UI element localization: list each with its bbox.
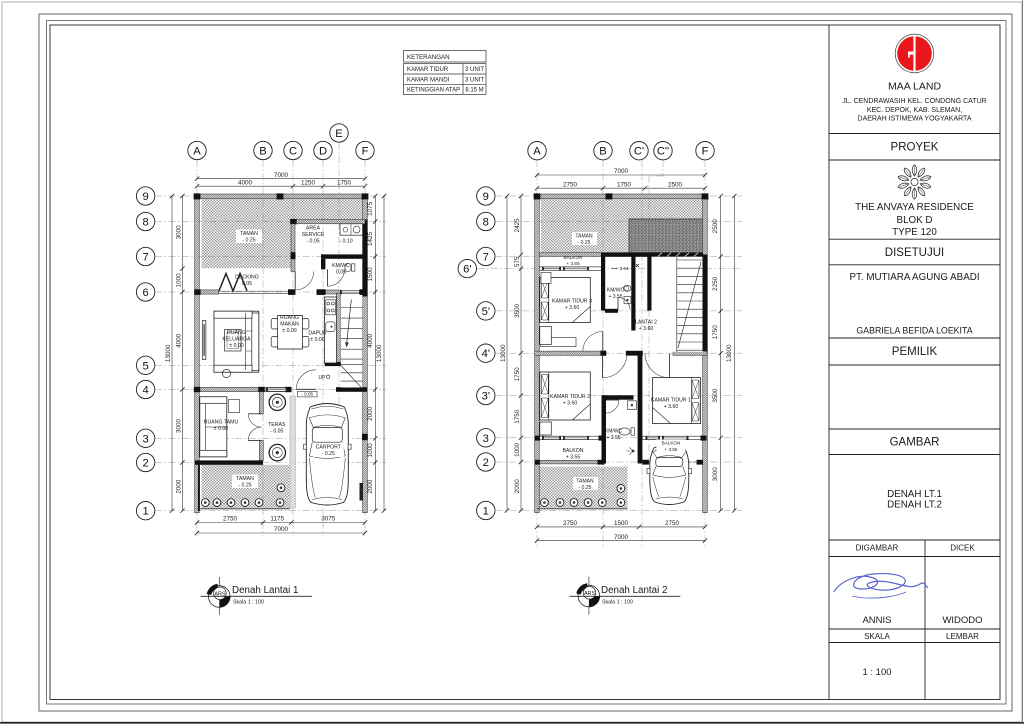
svg-text:2250: 2250 [712, 276, 719, 291]
svg-text:KM/WC: KM/WC [605, 429, 623, 435]
svg-text:LANTAI 2: LANTAI 2 [635, 320, 657, 326]
svg-text:0.05: 0.05 [242, 281, 252, 287]
svg-text:KEC. DEPOK, KAB. SLEMAN,: KEC. DEPOK, KAB. SLEMAN, [867, 107, 962, 114]
svg-text:CARPORT: CARPORT [316, 445, 342, 451]
svg-text:B: B [599, 146, 606, 158]
svg-text:+ 3.55: + 3.55 [566, 261, 580, 266]
svg-text:1075: 1075 [367, 201, 374, 216]
svg-text:DIGAMBAR: DIGAMBAR [856, 544, 899, 553]
svg-text:ANNIS: ANNIS [862, 615, 891, 626]
svg-text:3075: 3075 [321, 516, 336, 523]
svg-text:KAMAR TIDUR: KAMAR TIDUR [407, 67, 449, 73]
svg-text:+ 3.55: + 3.55 [606, 435, 620, 441]
svg-text:+ 3.60: + 3.60 [639, 326, 654, 332]
svg-text:2000: 2000 [514, 479, 521, 494]
svg-text:- 0.25: - 0.25 [579, 485, 592, 491]
svg-text:- 0.05: - 0.05 [301, 392, 313, 397]
svg-text:5: 5 [142, 360, 148, 372]
svg-text:MAA LAND: MAA LAND [888, 81, 942, 93]
svg-text:2750: 2750 [563, 181, 578, 188]
svg-text:5': 5' [482, 306, 490, 318]
svg-text:KETINGGIAN ATAP: KETINGGIAN ATAP [407, 88, 460, 94]
svg-text:C'': C'' [657, 146, 669, 158]
svg-text:THE ANVAYA RESIDENCE: THE ANVAYA RESIDENCE [855, 202, 974, 213]
svg-text:7000: 7000 [274, 526, 289, 533]
svg-text:Denah Lantai 1: Denah Lantai 1 [232, 585, 298, 596]
svg-text:F: F [702, 146, 709, 158]
svg-text:DENAH LT.1: DENAH LT.1 [887, 489, 942, 500]
svg-text:KM/WC: KM/WC [607, 288, 625, 294]
svg-text:SERVICE: SERVICE [302, 232, 325, 238]
svg-text:PEMILIK: PEMILIK [892, 346, 938, 358]
svg-text:13000: 13000 [165, 344, 172, 362]
svg-text:1500: 1500 [367, 267, 374, 282]
svg-text:RUANG TAMU: RUANG TAMU [204, 420, 239, 426]
svg-text:3: 3 [142, 433, 148, 445]
svg-text:2750: 2750 [223, 516, 238, 523]
svg-text:8: 8 [483, 217, 489, 229]
svg-text:3500: 3500 [712, 388, 719, 403]
svg-text:GABRIELA BEFIDA LOEKITA: GABRIELA BEFIDA LOEKITA [856, 326, 972, 336]
svg-text:575: 575 [514, 256, 521, 267]
svg-text:- 0.05: - 0.05 [270, 428, 283, 434]
svg-text:1 : 100: 1 : 100 [862, 667, 891, 678]
svg-text:1750: 1750 [337, 179, 352, 186]
svg-text:SKALA: SKALA [864, 632, 890, 641]
svg-text:AREA: AREA [306, 226, 321, 232]
svg-text:9: 9 [483, 191, 489, 203]
svg-text:C': C' [634, 146, 644, 158]
svg-text:13000: 13000 [500, 344, 507, 362]
svg-text:+ 3.60: + 3.60 [565, 305, 580, 311]
svg-text:1: 1 [142, 506, 148, 518]
svg-text:TAMAN: TAMAN [575, 234, 593, 240]
svg-text:PT. MUTIARA AGUNG ABADI: PT. MUTIARA AGUNG ABADI [849, 272, 979, 283]
svg-text:+ 3.60: + 3.60 [563, 400, 578, 406]
svg-text:+ 3.64: + 3.64 [615, 266, 629, 271]
svg-text:± 0.00: ± 0.00 [310, 337, 324, 343]
svg-text:KAMAR TIDUR 2: KAMAR TIDUR 2 [550, 394, 590, 400]
svg-text:A: A [533, 146, 541, 158]
svg-text:DECKING: DECKING [235, 275, 259, 281]
svg-text:± 0.00: ± 0.00 [229, 343, 243, 349]
svg-text:DICEK: DICEK [950, 544, 975, 553]
svg-text:3 UNIT: 3 UNIT [465, 77, 484, 83]
svg-text:± 0.00: ± 0.00 [214, 426, 228, 432]
svg-text:+ 3.55: + 3.55 [608, 294, 622, 300]
svg-text:7000: 7000 [614, 534, 629, 541]
svg-text:KM/WC: KM/WC [332, 263, 350, 269]
svg-text:KETERANGAN: KETERANGAN [407, 54, 450, 61]
svg-text:4: 4 [142, 385, 148, 397]
svg-text:1750: 1750 [617, 181, 632, 188]
svg-text:3: 3 [483, 433, 489, 445]
svg-text:7: 7 [142, 252, 148, 264]
svg-text:KAMAR MANDI: KAMAR MANDI [407, 77, 450, 83]
svg-text:4': 4' [482, 348, 490, 360]
svg-text:2750: 2750 [665, 520, 680, 527]
svg-text:0.05: 0.05 [336, 269, 346, 275]
svg-text:RUANG: RUANG [227, 330, 246, 336]
svg-text:UP: UP [319, 375, 327, 381]
svg-text:2500: 2500 [668, 181, 683, 188]
svg-text:TAMAN: TAMAN [576, 479, 594, 485]
svg-text:2500: 2500 [712, 219, 719, 234]
svg-text:- 0.10: - 0.10 [339, 239, 352, 245]
svg-text:2: 2 [142, 458, 148, 470]
svg-text:2: 2 [483, 457, 489, 469]
svg-text:- 0.25: - 0.25 [238, 482, 251, 488]
svg-text:PROYEK: PROYEK [891, 142, 939, 154]
svg-text:7000: 7000 [614, 168, 629, 175]
svg-text:3000: 3000 [176, 225, 183, 240]
svg-text:4000: 4000 [367, 333, 374, 348]
svg-text:TYPE 120: TYPE 120 [892, 227, 937, 238]
svg-text:GAMBAR: GAMBAR [890, 437, 940, 449]
svg-text:6': 6' [463, 264, 471, 276]
svg-text:Skala 1 : 100: Skala 1 : 100 [602, 600, 633, 606]
svg-text:8.15 M: 8.15 M [465, 88, 483, 94]
svg-text:JL. CENDRAWASIH KEL. CONDONG C: JL. CENDRAWASIH KEL. CONDONG CATUR [842, 98, 986, 105]
svg-text:TAMAN: TAMAN [240, 231, 258, 237]
svg-text:- 0.05: - 0.05 [306, 238, 319, 244]
svg-text:MAKAN: MAKAN [280, 321, 299, 327]
svg-text:DAERAH ISTIMEWA YOGYAKARTA: DAERAH ISTIMEWA YOGYAKARTA [858, 115, 972, 122]
svg-text:2000: 2000 [367, 479, 374, 494]
svg-text:13000: 13000 [726, 344, 733, 362]
svg-text:BLOK D: BLOK D [897, 215, 933, 226]
svg-text:DISETUJUI: DISETUJUI [885, 247, 944, 259]
svg-text:- 0.25: - 0.25 [578, 240, 591, 246]
svg-text:D: D [319, 146, 327, 158]
svg-text:1: 1 [483, 506, 489, 518]
svg-text:1250: 1250 [301, 179, 316, 186]
svg-text:KAMAR TIDUR 1: KAMAR TIDUR 1 [651, 398, 691, 404]
svg-text:8: 8 [142, 217, 148, 229]
svg-text:1425: 1425 [367, 232, 374, 247]
svg-text:F: F [362, 146, 369, 158]
svg-text:1750: 1750 [514, 409, 521, 424]
svg-text:Denah Lantai 2: Denah Lantai 2 [601, 585, 667, 596]
svg-text:3000: 3000 [712, 467, 719, 482]
svg-text:TAMAN: TAMAN [236, 476, 254, 482]
svg-text:BALKON: BALKON [662, 441, 681, 446]
svg-text:1175: 1175 [270, 516, 284, 523]
svg-text:2000: 2000 [367, 406, 374, 421]
svg-text:+ 3.60: + 3.60 [664, 404, 679, 410]
svg-text:± 0.00: ± 0.00 [282, 328, 296, 334]
svg-text:KELUARGA: KELUARGA [222, 336, 251, 342]
svg-text:A: A [193, 146, 201, 158]
svg-text:E: E [335, 128, 342, 140]
svg-text:1500: 1500 [614, 520, 629, 527]
svg-text:9: 9 [142, 191, 148, 203]
svg-text:Skala 1 : 100: Skala 1 : 100 [233, 600, 264, 606]
svg-text:1000: 1000 [367, 443, 374, 458]
svg-text:+ 3.55: + 3.55 [665, 447, 678, 452]
svg-text:LEMBAR: LEMBAR [946, 632, 979, 641]
svg-text:+ 3.55: + 3.55 [566, 454, 581, 460]
svg-text:2000: 2000 [176, 479, 183, 494]
svg-text:7000: 7000 [274, 172, 289, 179]
svg-text:BALKON: BALKON [563, 255, 582, 260]
svg-text:1000: 1000 [176, 273, 183, 288]
svg-text:1750: 1750 [712, 325, 719, 340]
svg-text:- 0.25: - 0.25 [242, 237, 255, 243]
svg-text:3000: 3000 [176, 419, 183, 434]
svg-text:DENAH LT.2: DENAH LT.2 [887, 500, 942, 511]
svg-text:1750: 1750 [514, 367, 521, 382]
svg-text:7: 7 [483, 252, 489, 264]
svg-text:C: C [289, 146, 297, 158]
svg-text:KAMAR TIDUR 3: KAMAR TIDUR 3 [552, 299, 592, 305]
svg-text:1000: 1000 [514, 442, 521, 457]
svg-text:13000: 13000 [376, 344, 383, 362]
svg-text:2750: 2750 [563, 520, 578, 527]
svg-text:- 0.25: - 0.25 [322, 451, 335, 457]
svg-text:3': 3' [482, 391, 490, 403]
svg-text:2425: 2425 [514, 218, 521, 233]
svg-text:TERAS: TERAS [268, 422, 286, 428]
svg-text:DAPUR: DAPUR [308, 331, 326, 337]
svg-text:BALKON: BALKON [562, 448, 583, 454]
svg-text:3500: 3500 [514, 303, 521, 318]
svg-text:6: 6 [142, 287, 148, 299]
svg-text:4000: 4000 [176, 333, 183, 348]
svg-text:WIDODO: WIDODO [942, 615, 982, 626]
svg-text:4000: 4000 [238, 179, 253, 186]
svg-text:B: B [259, 146, 266, 158]
svg-text:RUANG: RUANG [280, 315, 299, 321]
svg-text:3 UNIT: 3 UNIT [465, 67, 484, 73]
